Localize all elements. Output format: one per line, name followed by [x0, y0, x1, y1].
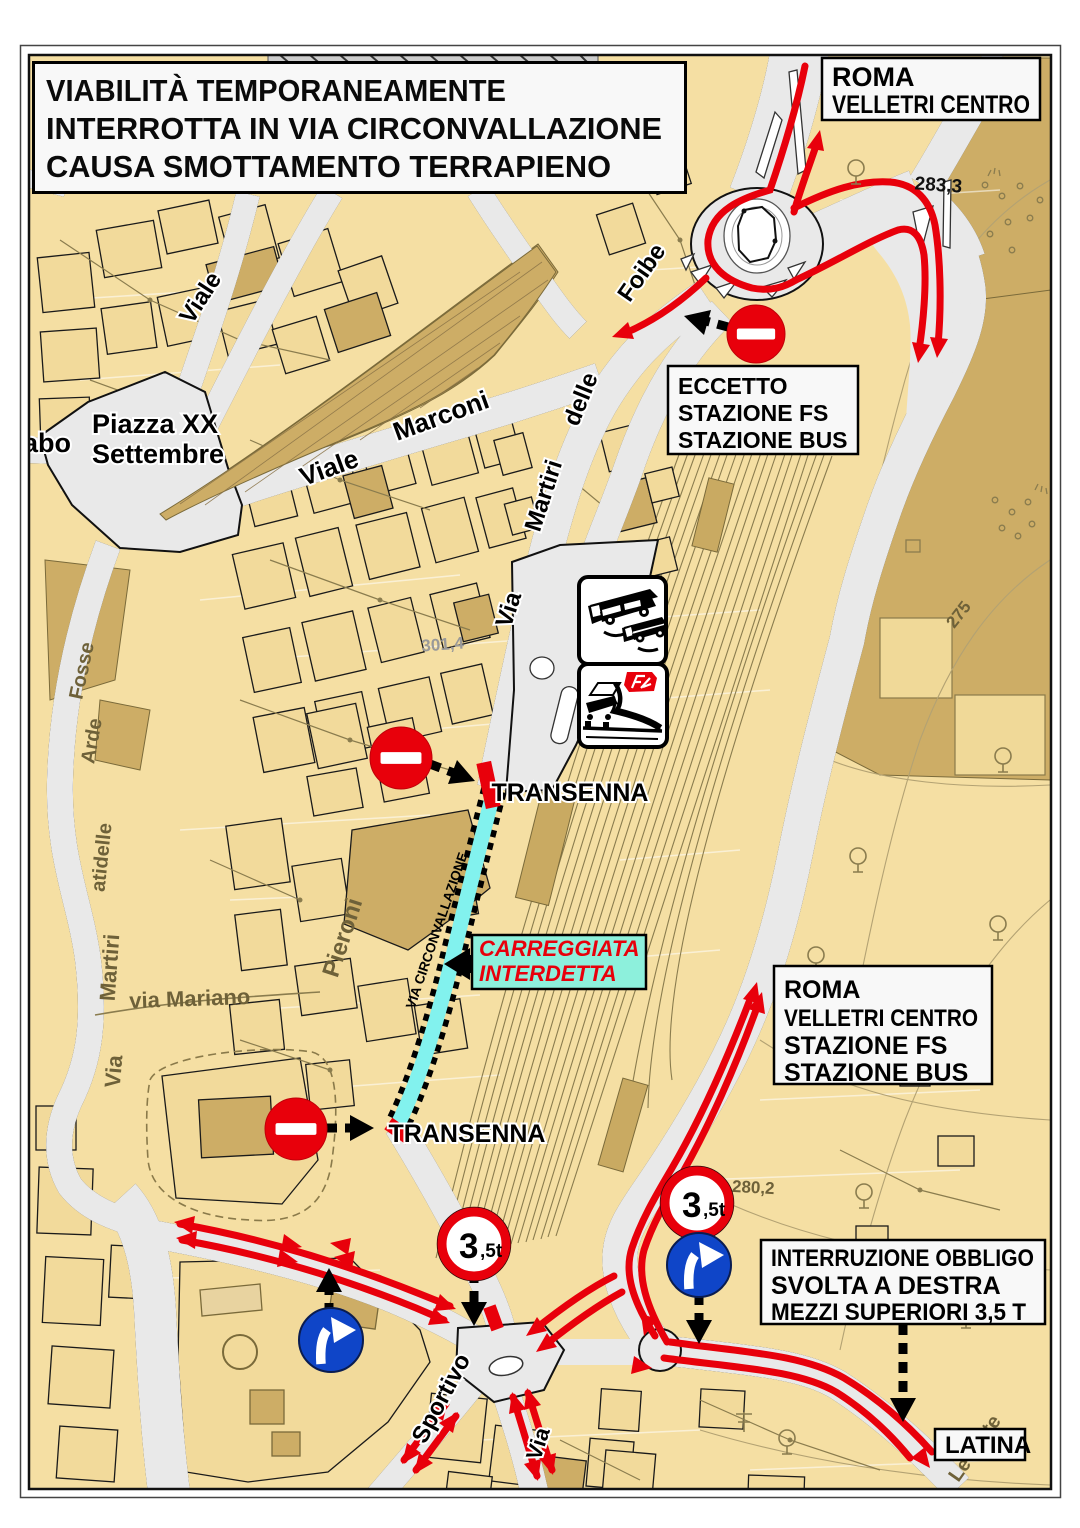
svg-text:STAZIONE BUS: STAZIONE BUS [678, 427, 848, 453]
svg-text:INTERROTTA IN VIA CIRCONVALLAZ: INTERROTTA IN VIA CIRCONVALLAZIONE [46, 111, 662, 146]
svg-text:Settembre: Settembre [92, 439, 224, 469]
svg-text:ECCETTO: ECCETTO [678, 373, 787, 399]
svg-text:VELLETRI CENTRO: VELLETRI CENTRO [784, 1005, 978, 1032]
svg-text:Via: Via [100, 1053, 128, 1088]
svg-text:3: 3 [459, 1227, 478, 1266]
svg-text:301,4: 301,4 [421, 634, 465, 656]
svg-text:LATINA: LATINA [945, 1432, 1031, 1459]
svg-text:MEZZI SUPERIORI 3,5 T: MEZZI SUPERIORI 3,5 T [771, 1299, 1026, 1326]
svg-text:STAZIONE BUS: STAZIONE BUS [784, 1059, 968, 1087]
svg-text:STAZIONE FS: STAZIONE FS [784, 1032, 947, 1060]
svg-text:CARREGGIATA: CARREGGIATA [479, 936, 640, 961]
svg-text:INTERDETTA: INTERDETTA [479, 961, 617, 986]
svg-text:CAUSA SMOTTAMENTO TERRAPIENO: CAUSA SMOTTAMENTO TERRAPIENO [46, 149, 611, 184]
svg-text:280,2: 280,2 [732, 1177, 775, 1198]
svg-text:STAZIONE FS: STAZIONE FS [678, 400, 828, 426]
svg-text:3: 3 [682, 1186, 701, 1225]
svg-text:INTERRUZIONE OBBLIGO: INTERRUZIONE OBBLIGO [771, 1245, 1034, 1272]
svg-text:via Mariano: via Mariano [129, 984, 251, 1013]
svg-text:VELLETRI CENTRO: VELLETRI CENTRO [832, 91, 1030, 119]
svg-text:TRANSENNA: TRANSENNA [492, 779, 649, 807]
svg-text:,5t: ,5t [703, 1200, 726, 1221]
svg-text:TRANSENNA: TRANSENNA [389, 1120, 546, 1148]
svg-text:ROMA: ROMA [784, 976, 860, 1004]
svg-text:,5t: ,5t [480, 1241, 503, 1262]
svg-text:Piazza XX: Piazza XX [92, 409, 218, 439]
svg-text:ROMA: ROMA [832, 62, 915, 92]
svg-text:SVOLTA A DESTRA: SVOLTA A DESTRA [771, 1272, 1001, 1300]
svg-text:VIABILITÀ TEMPORANEAMENTE: VIABILITÀ TEMPORANEAMENTE [46, 73, 506, 108]
svg-text:283,3: 283,3 [914, 173, 963, 197]
svg-text:Martiri: Martiri [95, 933, 125, 1002]
